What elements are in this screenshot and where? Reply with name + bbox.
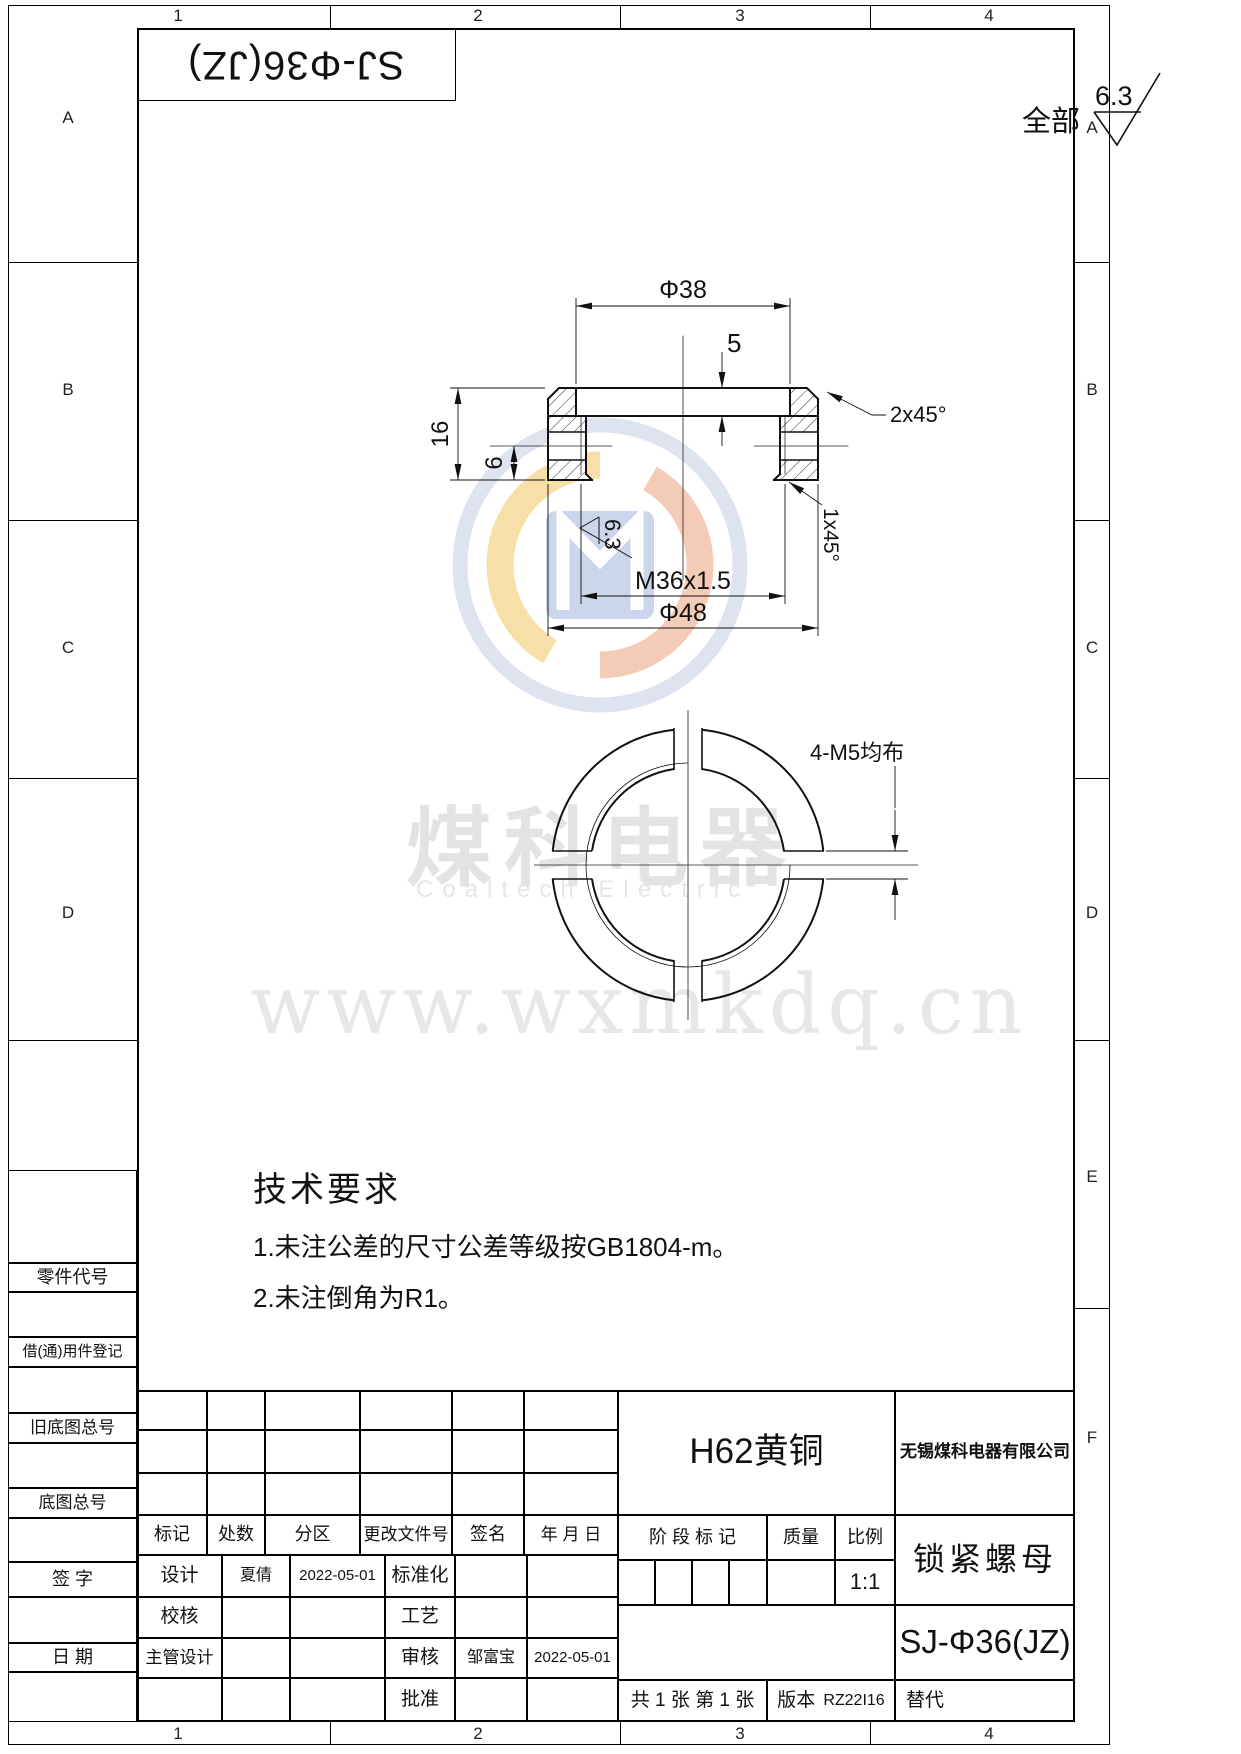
zone-left-c: C <box>62 638 74 658</box>
sign-role-process: 工艺 <box>385 1597 455 1638</box>
zone-tick <box>330 5 331 28</box>
zone-tick <box>870 5 871 28</box>
zone-right-c: C <box>1086 638 1098 658</box>
side-field-signature: 签 字 <box>8 1562 137 1597</box>
sign-date-review: 2022-05-01 <box>527 1638 618 1678</box>
sign-date-design: 2022-05-01 <box>290 1555 385 1597</box>
sign-role-approve: 批准 <box>385 1678 455 1722</box>
sign-role-standard: 标准化 <box>385 1555 455 1597</box>
zone-bottom-2: 2 <box>473 1724 482 1744</box>
sign-role-check: 校核 <box>137 1597 222 1638</box>
corner-title-text: SJ-Φ36(JZ) <box>187 42 404 87</box>
zone-top-1: 1 <box>173 6 182 26</box>
zone-top-3: 3 <box>735 6 744 26</box>
zone-tick <box>1075 778 1110 779</box>
tech-title: 技术要求 <box>253 1162 738 1211</box>
zone-top-2: 2 <box>473 6 482 26</box>
side-field-borrow: 借(通)用件登记 <box>8 1337 137 1367</box>
sign-role-chief: 主管设计 <box>137 1638 222 1678</box>
rev-header-mark: 标记 <box>137 1515 207 1555</box>
zone-left-a: A <box>62 108 73 128</box>
surface-note-value: 6.3 <box>1095 81 1133 111</box>
part-name-cell: 锁紧螺母 <box>895 1515 1075 1605</box>
zone-tick <box>8 1040 137 1041</box>
tech-item-2: 2.未注倒角为R1。 <box>253 1278 738 1315</box>
zone-right-f: F <box>1087 1428 1097 1448</box>
zone-tick <box>620 1722 621 1745</box>
material-cell: H62黄铜 <box>618 1390 895 1515</box>
zone-tick <box>870 1722 871 1745</box>
sign-name-review: 邹富宝 <box>455 1638 527 1678</box>
tech-requirements: 技术要求 1.未注公差的尺寸公差等级按GB1804-m。 2.未注倒角为R1。 <box>253 1162 738 1315</box>
zone-tick <box>8 262 137 263</box>
rev-header-date: 年 月 日 <box>524 1515 618 1555</box>
side-field-part-code: 零件代号 <box>8 1263 137 1292</box>
version-cell: 版本 RZ22I16 <box>767 1680 895 1722</box>
rev-header-count: 处数 <box>207 1515 265 1555</box>
zone-left-d: D <box>62 903 74 923</box>
tech-item-1: 1.未注公差的尺寸公差等级按GB1804-m。 <box>253 1227 738 1264</box>
zone-tick <box>1075 1308 1110 1309</box>
side-field-master: 底图总号 <box>8 1488 137 1518</box>
zone-top-4: 4 <box>984 6 993 26</box>
surface-note-label: 全部 <box>1022 98 1080 140</box>
zone-right-b: B <box>1086 380 1097 400</box>
weight-header: 质量 <box>767 1515 835 1560</box>
side-field-date: 日 期 <box>8 1643 137 1672</box>
zone-bottom-3: 3 <box>735 1724 744 1744</box>
rev-header-docno: 更改文件号 <box>360 1515 452 1555</box>
side-field-old-master: 旧底图总号 <box>8 1413 137 1443</box>
zone-left-b: B <box>62 380 73 400</box>
zone-tick <box>1075 520 1110 521</box>
zone-tick <box>1075 1040 1110 1041</box>
company-cell: 无锡煤科电器有限公司 <box>895 1390 1075 1515</box>
sign-role-design: 设计 <box>137 1555 222 1597</box>
drawing-sheet: 煤科电器 Coaltech Electric www.wxmkdq.cn <box>0 0 1241 1754</box>
rev-header-zone: 分区 <box>265 1515 360 1555</box>
zone-tick <box>1075 262 1110 263</box>
sign-role-review: 审核 <box>385 1638 455 1678</box>
zone-tick <box>8 778 137 779</box>
zone-bottom-4: 4 <box>984 1724 993 1744</box>
stage-header: 阶 段 标 记 <box>618 1515 767 1560</box>
version-value: RZ22I16 <box>823 1692 884 1710</box>
replace-cell: 替代 <box>895 1680 1075 1722</box>
corner-title-box: SJ-Φ36(JZ) <box>137 28 456 101</box>
rev-header-sign: 签名 <box>452 1515 524 1555</box>
zone-bottom-1: 1 <box>173 1724 182 1744</box>
zone-right-e: E <box>1086 1167 1097 1187</box>
sign-name-design: 夏倩 <box>222 1555 290 1597</box>
drawing-number-cell: SJ-Φ36(JZ) <box>895 1605 1075 1680</box>
zone-tick <box>620 5 621 28</box>
sheet-info-cell: 共 1 张 第 1 张 <box>618 1680 767 1722</box>
roughness-symbol-global: 6.3 <box>1085 60 1175 155</box>
zone-tick <box>8 520 137 521</box>
zone-right-d: D <box>1086 903 1098 923</box>
scale-header: 比例 <box>835 1515 895 1560</box>
version-label: 版本 <box>777 1691 815 1712</box>
zone-tick <box>330 1722 331 1745</box>
scale-value: 1:1 <box>835 1560 895 1605</box>
